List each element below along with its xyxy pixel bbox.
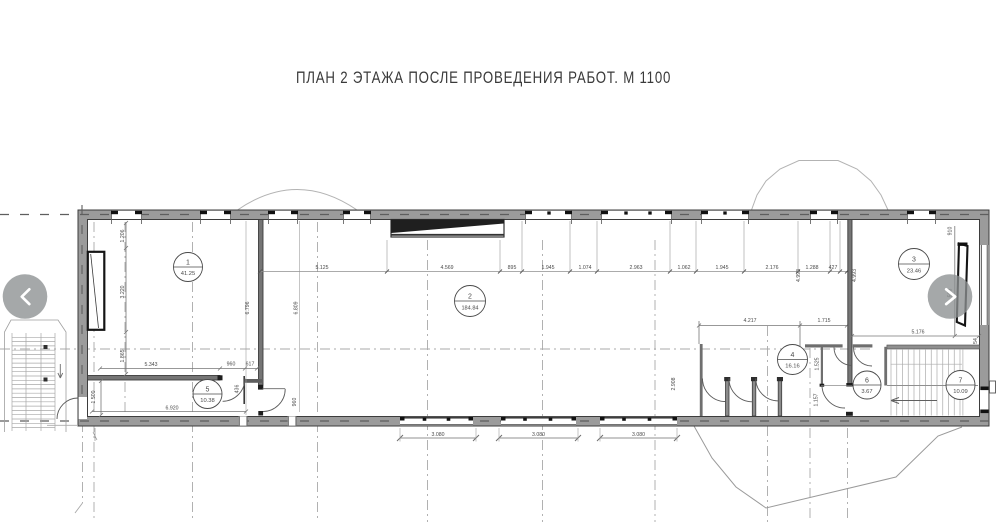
- svg-text:6.796: 6.796: [245, 301, 251, 314]
- svg-text:1.206: 1.206: [120, 229, 126, 242]
- svg-text:6.920: 6.920: [166, 406, 179, 412]
- svg-text:1: 1: [186, 260, 190, 267]
- svg-text:10.09: 10.09: [953, 389, 968, 395]
- svg-text:2: 2: [468, 294, 472, 301]
- svg-text:1.945: 1.945: [542, 265, 555, 271]
- svg-text:3.67: 3.67: [861, 389, 872, 395]
- svg-text:5.343: 5.343: [145, 362, 158, 368]
- svg-text:5: 5: [206, 387, 210, 394]
- svg-text:1.288: 1.288: [806, 265, 819, 271]
- svg-text:1.157: 1.157: [814, 393, 820, 406]
- svg-text:427: 427: [829, 265, 838, 271]
- svg-text:4.993: 4.993: [796, 269, 802, 282]
- svg-text:23.46: 23.46: [907, 269, 922, 275]
- svg-text:10.38: 10.38: [200, 398, 215, 404]
- svg-text:6: 6: [865, 378, 869, 385]
- svg-text:1.865: 1.865: [120, 349, 126, 362]
- svg-text:1.525: 1.525: [815, 357, 821, 370]
- svg-text:910: 910: [948, 227, 954, 236]
- svg-text:1.945: 1.945: [716, 265, 729, 271]
- svg-text:54: 54: [973, 338, 979, 344]
- svg-text:3: 3: [912, 257, 916, 264]
- svg-text:4.569: 4.569: [441, 265, 454, 271]
- svg-text:1.500: 1.500: [91, 390, 97, 403]
- svg-text:4: 4: [791, 352, 795, 359]
- svg-text:1.074: 1.074: [579, 265, 592, 271]
- svg-text:960: 960: [292, 398, 298, 407]
- svg-text:4.993: 4.993: [852, 269, 858, 282]
- svg-text:2.176: 2.176: [766, 265, 779, 271]
- svg-text:3.080: 3.080: [532, 432, 545, 438]
- svg-text:436: 436: [235, 385, 241, 394]
- svg-text:1.062: 1.062: [678, 265, 691, 271]
- svg-text:184.84: 184.84: [461, 306, 478, 312]
- svg-text:3.080: 3.080: [432, 432, 445, 438]
- svg-text:3.080: 3.080: [632, 432, 645, 438]
- svg-text:5.125: 5.125: [316, 265, 329, 271]
- svg-text:41.25: 41.25: [181, 271, 196, 277]
- svg-text:4.217: 4.217: [744, 318, 757, 324]
- svg-text:1.715: 1.715: [818, 318, 831, 324]
- svg-text:7: 7: [959, 378, 963, 385]
- svg-text:6.809: 6.809: [294, 301, 300, 314]
- svg-text:895: 895: [508, 265, 517, 271]
- svg-text:16.16: 16.16: [785, 364, 800, 370]
- svg-text:3.220: 3.220: [120, 285, 126, 298]
- svg-text:2.908: 2.908: [671, 377, 677, 390]
- svg-text:5.176: 5.176: [912, 330, 925, 336]
- svg-text:2.963: 2.963: [630, 265, 643, 271]
- svg-text:960: 960: [227, 362, 236, 368]
